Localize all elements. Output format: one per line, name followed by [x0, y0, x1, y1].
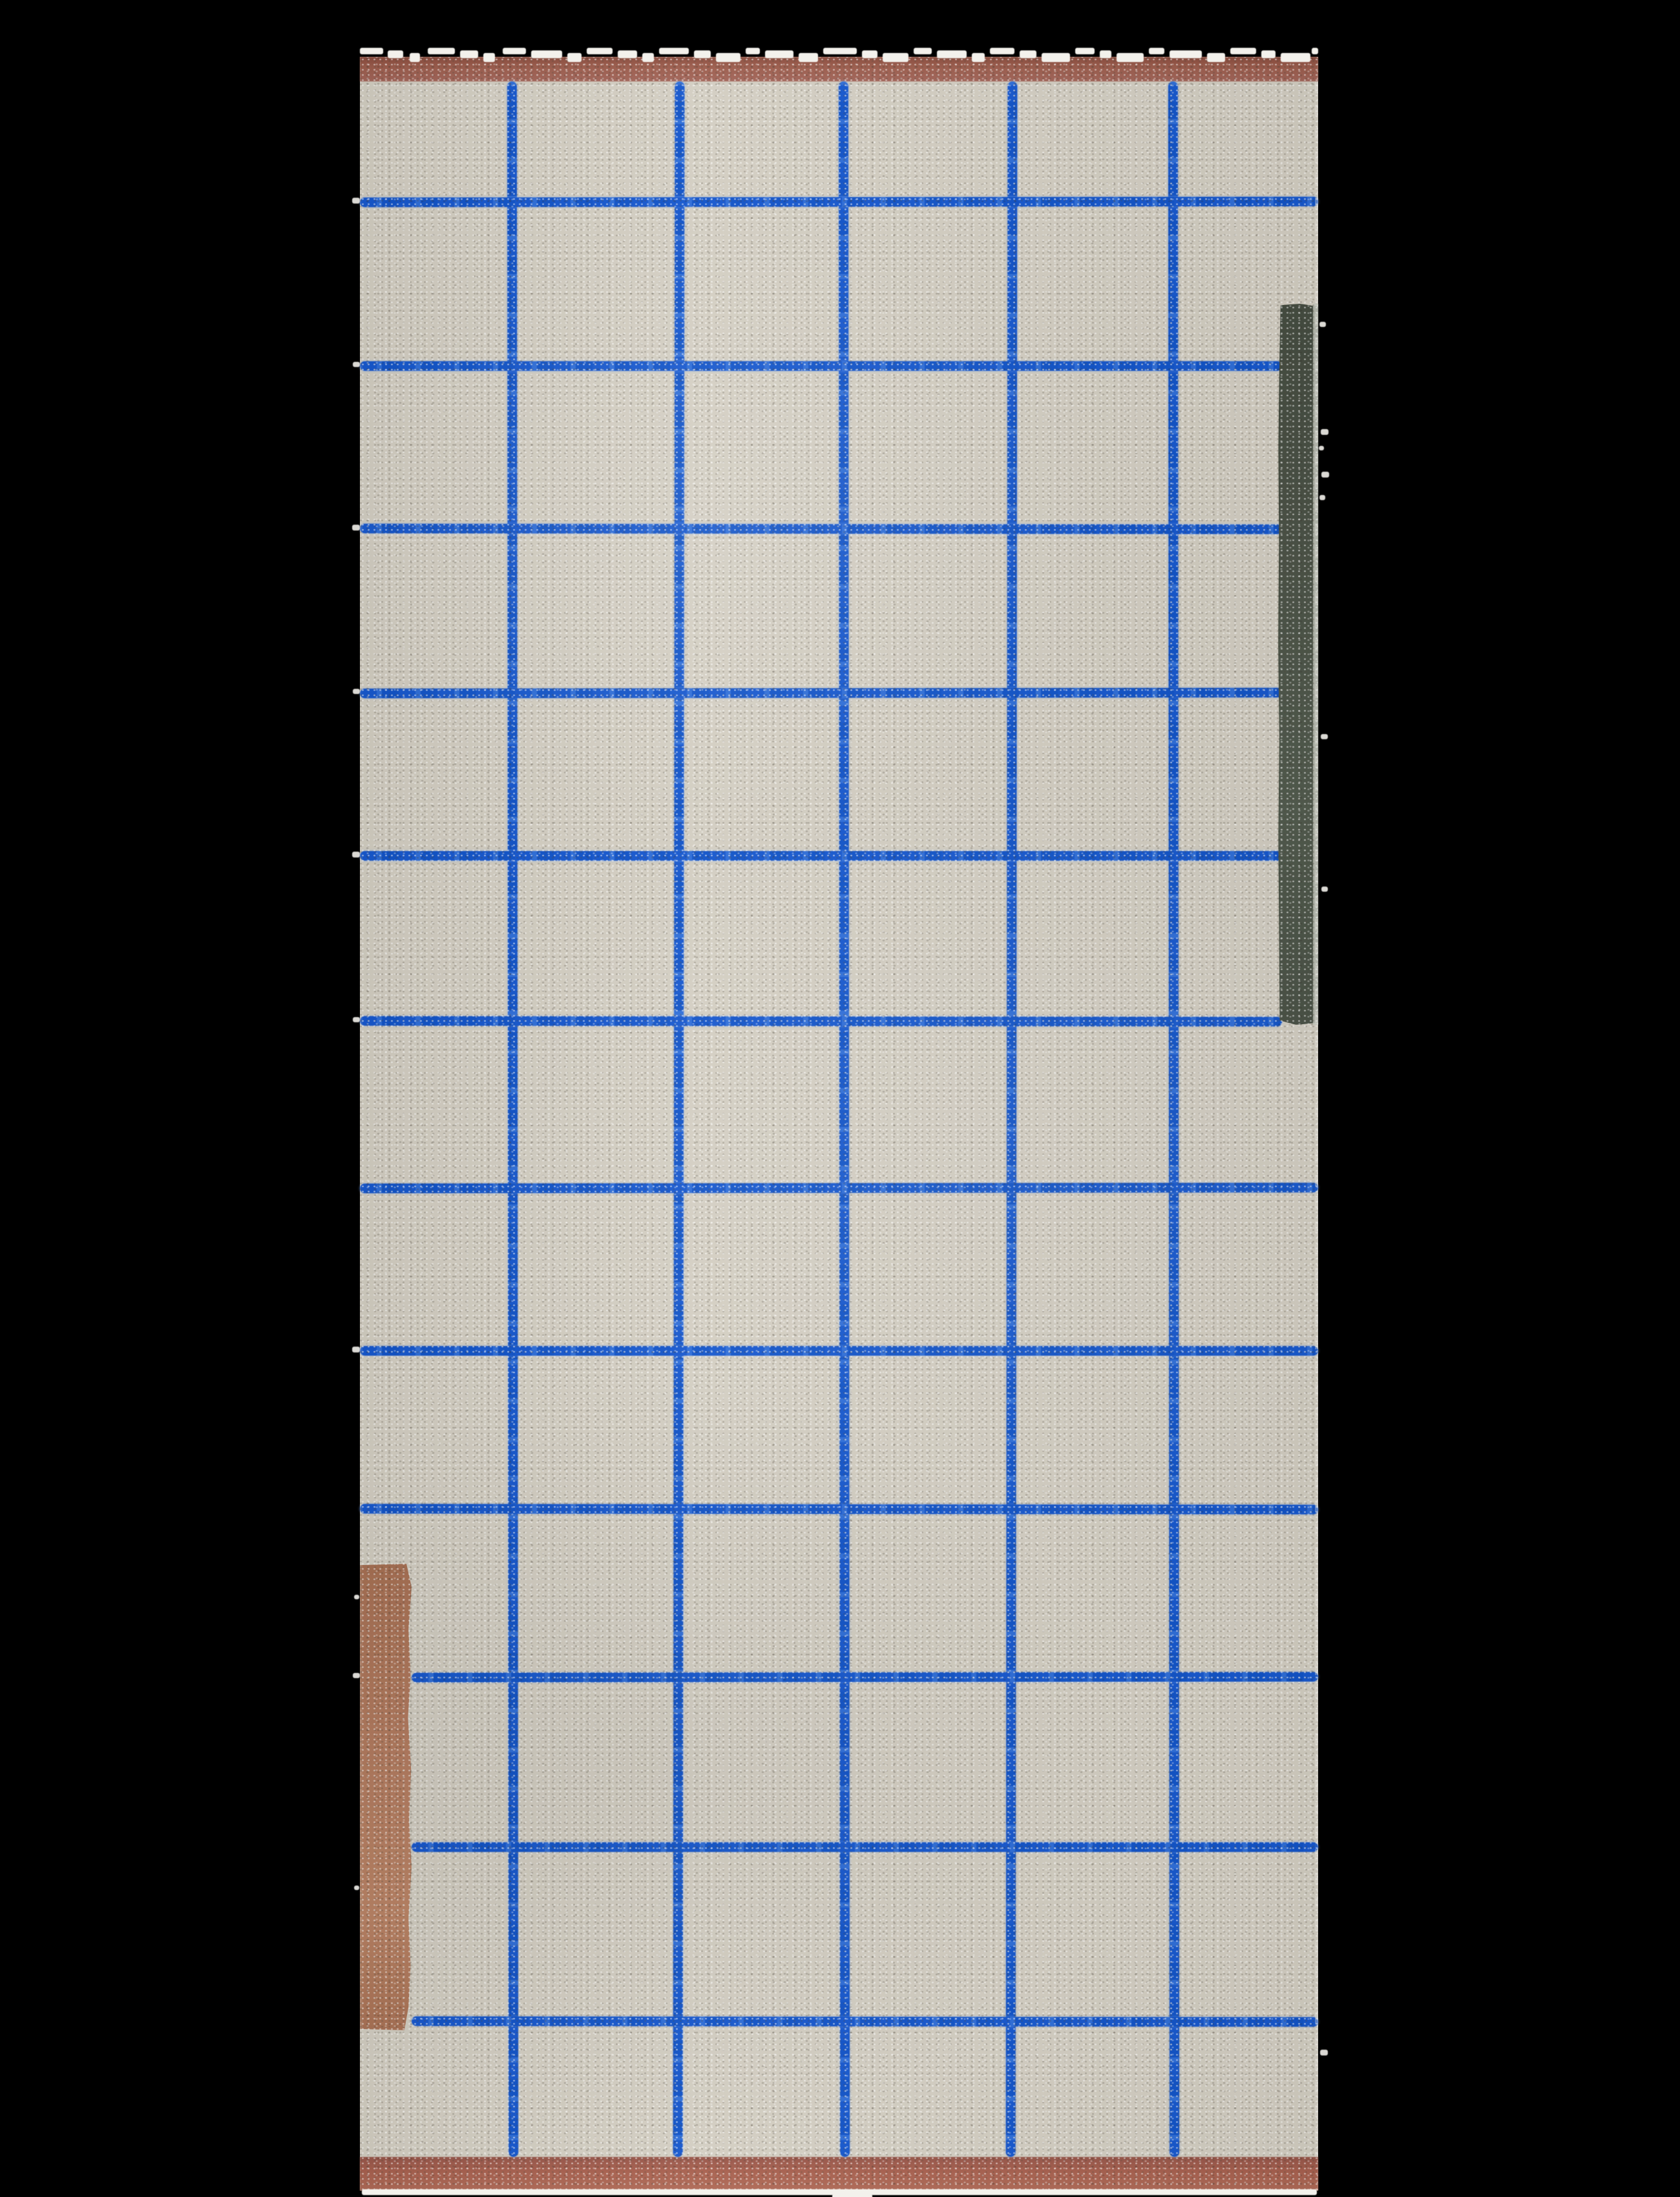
top-fringe-dash	[428, 48, 455, 54]
top-fringe-dash	[1149, 48, 1164, 54]
top-fringe-dash	[618, 50, 637, 58]
grid-hline	[360, 523, 1282, 534]
top-fringe-dash	[765, 50, 793, 58]
left-edge-tick	[353, 1673, 360, 1678]
grid-hline	[360, 1346, 1318, 1356]
top-fringe-dash	[1117, 53, 1144, 62]
top-fringe-dash	[1020, 50, 1036, 58]
top-fringe-dash	[503, 48, 526, 54]
right-edge-speck	[1321, 887, 1328, 892]
top-fringe-dash	[587, 48, 613, 54]
top-fringe-dash	[799, 53, 818, 62]
rug-left-edge-seam	[360, 81, 362, 2157]
left-edge-tick	[353, 689, 360, 694]
top-fringe-dash	[659, 48, 689, 54]
right-edge-speck	[1319, 322, 1326, 327]
bottom-stripe	[360, 2157, 1318, 2191]
top-fringe-dash	[642, 53, 654, 62]
right-edge-speck	[1321, 734, 1328, 739]
grid-hline	[412, 1842, 1318, 1852]
top-fringe-dash	[1100, 50, 1111, 58]
top-fringe-dash	[972, 53, 985, 62]
grid-hline	[360, 361, 1282, 371]
left-edge-tick	[352, 852, 360, 857]
rug-right-edge-seam	[1315, 81, 1318, 2157]
rug-photo	[0, 0, 1680, 2197]
top-fringe-dash	[862, 50, 877, 58]
top-fringe-dash	[937, 50, 967, 58]
top-fringe-dash	[716, 53, 740, 62]
grid-hline	[412, 1672, 1318, 1682]
right-edge-speck	[1319, 495, 1325, 500]
right-edge-speck	[1321, 472, 1329, 478]
top-fringe-dash	[567, 53, 582, 62]
grid-hline	[412, 2016, 1318, 2026]
terracotta-accent-patch	[360, 1564, 412, 2030]
right-edge-speck	[1319, 446, 1324, 450]
top-fringe-dash	[1042, 53, 1070, 62]
right-edge-speck	[1321, 429, 1328, 435]
grid-hline	[360, 1183, 1318, 1193]
top-fringe-dash	[388, 50, 403, 58]
top-fringe-dash	[1281, 53, 1310, 62]
top-stripe	[360, 57, 1318, 81]
grid-hline	[360, 1016, 1282, 1026]
top-fringe-dash	[483, 53, 495, 62]
left-edge-tick	[353, 362, 360, 367]
grid-hline	[360, 851, 1282, 861]
top-fringe-dash	[410, 53, 420, 62]
grid-hline	[360, 196, 1318, 207]
grid-hline	[360, 1504, 1318, 1514]
top-fringe-dash	[990, 48, 1014, 54]
top-fringe-dash	[694, 50, 711, 58]
left-edge-tick	[352, 198, 360, 204]
top-fringe-dash	[1170, 50, 1202, 58]
left-edge-tick	[354, 1595, 359, 1599]
right-edge-speck	[1320, 2050, 1328, 2055]
photo-backdrop	[0, 0, 1680, 2197]
top-fringe-dash	[460, 50, 478, 58]
top-fringe-dash	[914, 48, 932, 54]
left-edge-tick	[353, 1017, 360, 1022]
bottom-fringe-dash	[832, 2194, 872, 2197]
top-fringe-dash	[1230, 48, 1256, 54]
left-edge-tick	[352, 1347, 360, 1352]
left-edge-tick	[352, 525, 360, 531]
top-fringe-dash	[746, 48, 760, 54]
grid-hline	[360, 688, 1282, 698]
left-edge-tick	[354, 1886, 359, 1890]
top-fringe-dash	[531, 50, 562, 58]
top-fringe-dash	[1207, 53, 1225, 62]
top-fringe-dash	[360, 48, 383, 54]
top-fringe-dash	[1312, 48, 1318, 54]
top-fringe-dash	[1261, 50, 1276, 58]
top-fringe-dash	[823, 48, 857, 54]
green-accent-patch	[1278, 304, 1318, 1025]
top-fringe-dash	[1075, 48, 1095, 54]
top-fringe-dash	[883, 53, 908, 62]
